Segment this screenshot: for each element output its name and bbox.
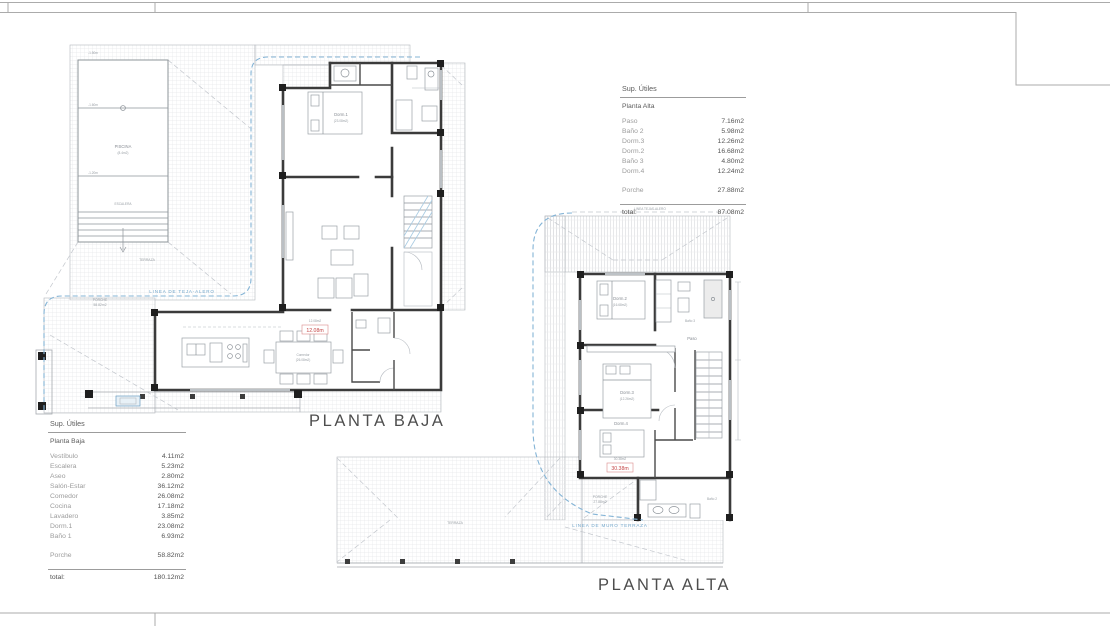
row-value: 4.11m2 (162, 452, 184, 462)
row-label: Cocina (50, 502, 71, 512)
room-area-dorm2: (16.68m2) (613, 303, 628, 307)
row-value: 16.68m2 (718, 147, 744, 157)
row-value: 3.85m2 (161, 512, 184, 522)
row-value: 23.08m2 (158, 522, 184, 532)
total-label: total: (50, 574, 65, 581)
table-total: total: 87.08m2 (620, 204, 746, 216)
row-value: 26.08m2 (158, 492, 184, 502)
table-header: Sup. Útiles (620, 84, 746, 98)
dimension-line (735, 282, 741, 440)
row-label: Dorm.1 (50, 522, 72, 532)
table-subheader: Planta Baja (50, 438, 184, 445)
row-label: Dorm.3 (622, 137, 644, 147)
table-row: Dorm.412.24m2 (622, 167, 744, 177)
row-label: Aseo (50, 472, 66, 482)
row-value: 4.80m2 (721, 157, 744, 167)
room-label-dorm2: Dorm.2 (613, 296, 627, 301)
planter (116, 396, 140, 406)
row-label: Dorm.2 (622, 147, 644, 157)
room-label-dorm4: Dorm.4 (614, 421, 628, 426)
table-row: Dorm.312.26m2 (622, 137, 744, 147)
table-total: total: 180.12m2 (48, 569, 186, 581)
row-value: 12.24m2 (718, 167, 744, 177)
porch-label: PORCHE (593, 495, 608, 499)
red-tag-note: 12.08m2 (309, 319, 322, 323)
room-label-bano3: Baño 3 (685, 319, 695, 323)
porch-label: PORCHE (93, 298, 108, 302)
row-value: 12.26m2 (718, 137, 744, 147)
plan-title-alta: PLANTA ALTA (598, 576, 731, 595)
table-row: Escalera5.23m2 (50, 462, 184, 472)
room-area-dorm1: (23.08m2) (334, 119, 349, 123)
terrace-label: TERRAZA (447, 521, 464, 525)
pool-depth-label: -1.50m (88, 51, 98, 55)
row-label: Comedor (50, 492, 78, 502)
table-row: Lavadero3.85m2 (50, 512, 184, 522)
table-row: Baño 34.80m2 (622, 157, 744, 167)
table-row: Comedor26.08m2 (50, 492, 184, 502)
row-label: Vestíbulo (50, 452, 78, 462)
row-label: Baño 3 (622, 157, 644, 167)
red-tag-value: 12.08m (306, 328, 323, 334)
bed-dorm4 (600, 430, 644, 457)
table-row: Baño 25.98m2 (622, 127, 744, 137)
row-value: 5.98m2 (721, 127, 744, 137)
room-area-comedor: (26.08m2) (296, 358, 311, 362)
row-label: Porche (50, 551, 72, 561)
table-rows: Vestíbulo4.11m2Escalera5.23m2Aseo2.80m2S… (48, 452, 186, 561)
plan-title-baja: PLANTA BAJA (309, 412, 446, 431)
row-label: Escalera (50, 462, 76, 472)
table-row: Salón-Estar36.12m2 (50, 482, 184, 492)
room-label-comedor: Comedor (296, 353, 310, 357)
table-rows: Paso7.16m2Baño 25.98m2Dorm.312.26m2Dorm.… (620, 117, 746, 196)
table-row: Aseo2.80m2 (50, 472, 184, 482)
room-label-paso: Paso (687, 336, 697, 341)
floorplan-sheet: -1.50m -1.60m -1.20m PISCINA (8.4m2) ESC… (0, 0, 1110, 626)
row-label: Paso (622, 117, 638, 127)
table-row: Vestíbulo4.11m2 (50, 452, 184, 462)
row-value: 17.18m2 (158, 502, 184, 512)
roofline-label: LINEA DE TEJA-ALERO (149, 289, 214, 294)
room-label-dorm3: Dorm.3 (620, 390, 634, 395)
red-tag-note: 30.38m2 (614, 457, 627, 461)
red-tag-value: 30.38m (611, 466, 628, 472)
pool-depth-label: -1.60m (88, 103, 98, 107)
table-row: Dorm.216.68m2 (622, 147, 744, 157)
bed-dorm2 (597, 280, 671, 322)
row-label: Baño 1 (50, 532, 72, 542)
row-value: 58.82m2 (158, 551, 184, 561)
room-label-dorm1: Dorm.1 (334, 112, 348, 117)
row-label: Baño 2 (622, 127, 644, 137)
porch-area-label: 27.88m2 (593, 500, 606, 504)
table-subheader: Planta Alta (622, 103, 744, 110)
row-label: Dorm.4 (622, 167, 644, 177)
total-label: total: (622, 209, 637, 216)
total-value: 180.12m2 (154, 574, 184, 581)
table-row: Dorm.123.08m2 (50, 522, 184, 532)
area-table-baja: Sup. Útiles Planta Baja Vestíbulo4.11m2E… (48, 419, 186, 581)
table-row: Baño 16.93m2 (50, 532, 184, 542)
area-table-alta: Sup. Útiles Planta Alta Paso7.16m2Baño 2… (620, 84, 746, 216)
row-value: 7.16m2 (721, 117, 744, 127)
table-header: Sup. Útiles (48, 419, 186, 433)
row-label: Porche (622, 186, 644, 196)
pool: -1.50m -1.60m -1.20m PISCINA (8.4m2) ESC… (78, 51, 168, 252)
row-value: 6.93m2 (161, 532, 184, 542)
row-label: Lavadero (50, 512, 78, 522)
row-value: 5.23m2 (161, 462, 184, 472)
table-row: Porche27.88m2 (622, 186, 744, 196)
roofline-label: LINEA DE MURO TERRAZA (572, 523, 648, 528)
room-label-bano2: Baño 2 (707, 497, 717, 501)
table-row: Porche58.82m2 (50, 551, 184, 561)
room-area-dorm3: (12.26m2) (620, 397, 635, 401)
planta-baja-plan: -1.50m -1.60m -1.20m PISCINA (8.4m2) ESC… (36, 45, 465, 414)
row-value: 36.12m2 (158, 482, 184, 492)
total-value: 87.08m2 (718, 209, 744, 216)
porch-area-label: 58.82m2 (93, 303, 106, 307)
table-row: Cocina17.18m2 (50, 502, 184, 512)
row-label: Salón-Estar (50, 482, 86, 492)
terrace-label: TERRAZA (139, 258, 156, 262)
staircase (696, 352, 722, 438)
row-value: 27.88m2 (718, 186, 744, 196)
pool-label: PISCINA (115, 144, 132, 149)
pool-steps-label: ESCALERA (114, 202, 132, 206)
row-value: 2.80m2 (161, 472, 184, 482)
pool-area-label: (8.4m2) (118, 151, 129, 155)
table-row: Paso7.16m2 (622, 117, 744, 127)
pool-depth-label: -1.20m (88, 171, 98, 175)
